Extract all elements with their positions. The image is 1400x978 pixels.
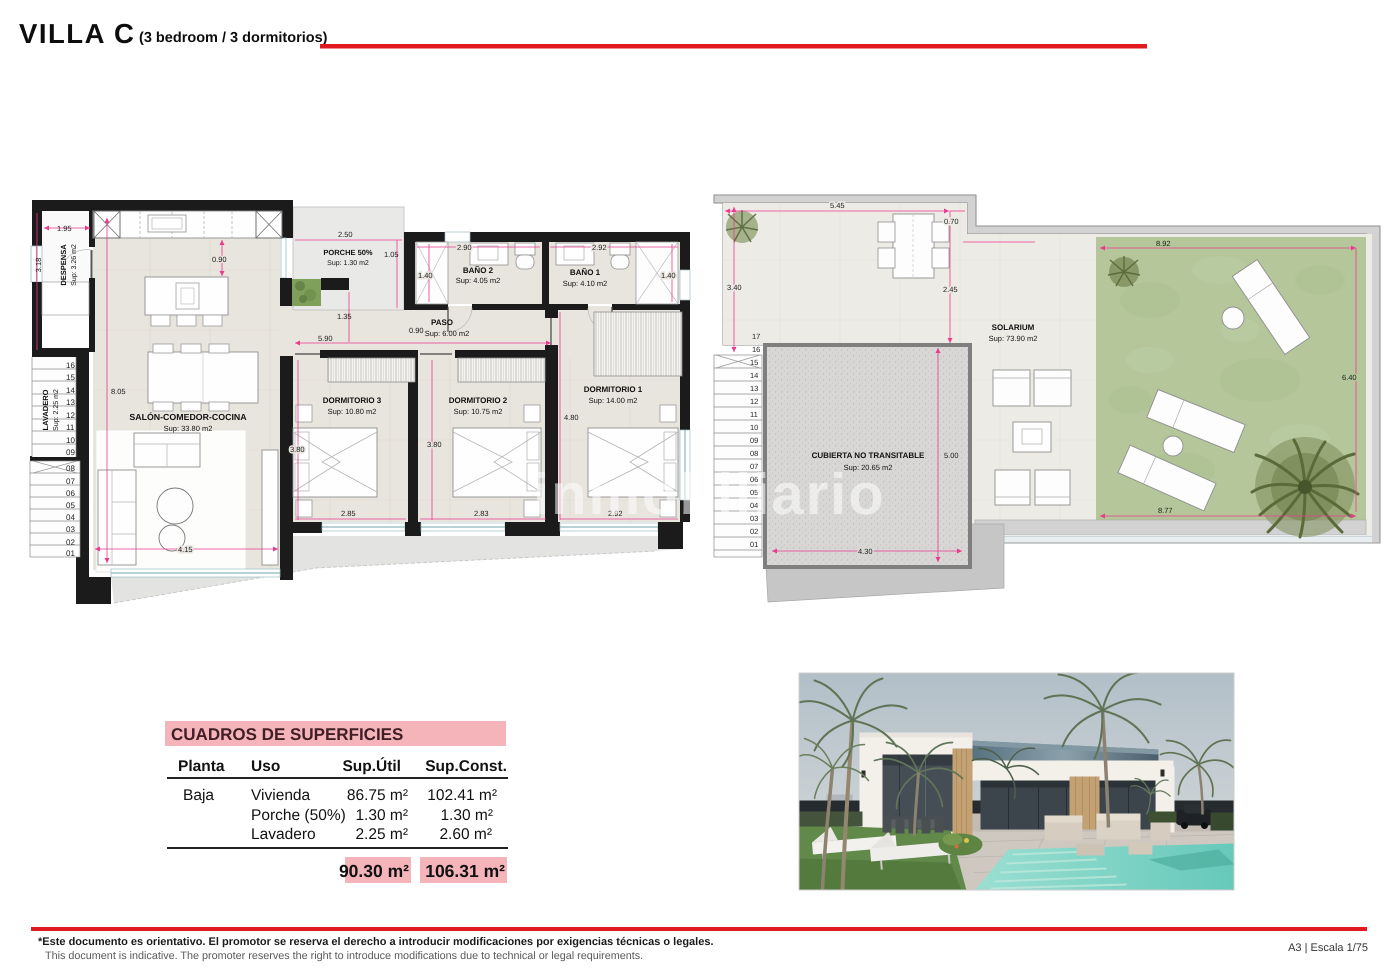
svg-text:PASO: PASO	[431, 318, 453, 327]
svg-text:Vivienda: Vivienda	[251, 787, 311, 804]
svg-text:Sup.Útil: Sup.Útil	[342, 757, 401, 775]
svg-text:12: 12	[66, 411, 75, 420]
svg-text:3.80: 3.80	[290, 445, 305, 454]
svg-text:Sup: 73.90 m2: Sup: 73.90 m2	[989, 334, 1038, 343]
svg-text:1.40: 1.40	[661, 271, 676, 280]
svg-text:2.25 m²: 2.25 m²	[355, 826, 408, 843]
svg-text:02: 02	[66, 538, 75, 547]
svg-text:Lavadero: Lavadero	[251, 826, 316, 843]
svg-text:LAVADERO: LAVADERO	[41, 389, 50, 430]
svg-text:15: 15	[66, 373, 75, 382]
svg-text:2.60 m²: 2.60 m²	[439, 826, 492, 843]
svg-text:Sup: 1.30 m2: Sup: 1.30 m2	[327, 260, 369, 267]
svg-text:SOLARIUM: SOLARIUM	[992, 323, 1035, 332]
svg-text:08: 08	[66, 464, 75, 473]
svg-text:1.30 m²: 1.30 m²	[440, 807, 493, 824]
svg-text:Sup: 2.25 m2: Sup: 2.25 m2	[53, 389, 60, 431]
svg-text:4.80: 4.80	[564, 413, 579, 422]
svg-text:PORCHE 50%: PORCHE 50%	[323, 248, 373, 257]
svg-text:1.40: 1.40	[418, 271, 433, 280]
svg-text:1.30 m²: 1.30 m²	[355, 807, 408, 824]
svg-text:01: 01	[66, 549, 75, 558]
svg-text:2.45: 2.45	[943, 285, 958, 294]
svg-text:1.95: 1.95	[57, 224, 72, 233]
svg-text:inmobiliario: inmobiliario	[533, 462, 886, 527]
svg-text:BAÑO 2: BAÑO 2	[463, 265, 494, 275]
svg-text:5.45: 5.45	[830, 201, 845, 210]
svg-text:06: 06	[66, 489, 75, 498]
svg-text:08: 08	[750, 449, 758, 458]
svg-text:Porche (50%): Porche (50%)	[251, 807, 346, 824]
svg-text:Planta: Planta	[178, 758, 225, 775]
svg-text:Sup: 3.26 m2: Sup: 3.26 m2	[71, 244, 78, 286]
svg-text:VILLA C: VILLA C	[19, 18, 135, 49]
svg-text:13: 13	[750, 384, 758, 393]
svg-text:(3 bedroom / 3 dormitorios): (3 bedroom / 3 dormitorios)	[139, 30, 328, 46]
svg-text:16: 16	[66, 361, 75, 370]
svg-text:90.30 m²: 90.30 m²	[339, 861, 409, 881]
svg-text:3.40: 3.40	[727, 283, 742, 292]
svg-text:Sup: 14.00 m2: Sup: 14.00 m2	[589, 396, 638, 405]
svg-text:3.18: 3.18	[34, 258, 43, 273]
svg-text:Sup.Const.: Sup.Const.	[425, 758, 507, 775]
svg-text:10: 10	[750, 423, 758, 432]
svg-text:04: 04	[66, 513, 75, 522]
svg-text:4.15: 4.15	[178, 545, 193, 554]
svg-text:0.90: 0.90	[409, 326, 424, 335]
svg-text:2.90: 2.90	[457, 243, 472, 252]
svg-text:8.92: 8.92	[1156, 239, 1171, 248]
svg-text:CUBIERTA NO TRANSITABLE: CUBIERTA NO TRANSITABLE	[812, 451, 925, 460]
svg-text:02: 02	[750, 527, 758, 536]
svg-text:Sup: 10.75 m2: Sup: 10.75 m2	[454, 407, 503, 416]
svg-text:2.83: 2.83	[474, 509, 489, 518]
svg-text:Sup: 6.00 m2: Sup: 6.00 m2	[425, 329, 470, 338]
svg-text:86.75 m²: 86.75 m²	[347, 787, 408, 804]
svg-text:17: 17	[752, 332, 760, 341]
svg-text:1.05: 1.05	[384, 250, 399, 259]
svg-text:DORMITORIO 1: DORMITORIO 1	[584, 385, 643, 394]
svg-text:102.41 m²: 102.41 m²	[427, 787, 497, 804]
svg-text:03: 03	[66, 525, 75, 534]
svg-text:*Este documento es orientativo: *Este documento es orientativo. El promo…	[38, 936, 714, 948]
svg-text:05: 05	[66, 501, 75, 510]
svg-text:2.92: 2.92	[592, 243, 607, 252]
svg-text:01: 01	[750, 540, 758, 549]
svg-text:07: 07	[66, 477, 75, 486]
svg-text:12: 12	[750, 397, 758, 406]
svg-text:3.80: 3.80	[427, 440, 442, 449]
svg-text:Baja: Baja	[183, 787, 214, 804]
svg-text:Sup: 33.80 m2: Sup: 33.80 m2	[164, 424, 213, 433]
svg-text:Sup: 4.05 m2: Sup: 4.05 m2	[456, 276, 501, 285]
svg-text:11: 11	[66, 423, 75, 432]
svg-text:16: 16	[752, 345, 760, 354]
svg-text:5.90: 5.90	[318, 334, 333, 343]
svg-text:Sup: 10.80 m2: Sup: 10.80 m2	[328, 407, 377, 416]
svg-text:SALÓN-COMEDOR-COCINA: SALÓN-COMEDOR-COCINA	[129, 412, 247, 422]
svg-text:2.50: 2.50	[338, 230, 353, 239]
svg-text:13: 13	[66, 398, 75, 407]
svg-text:6.40: 6.40	[1342, 373, 1357, 382]
svg-text:15: 15	[750, 358, 758, 367]
svg-text:4.30: 4.30	[858, 547, 873, 556]
svg-text:09: 09	[750, 436, 758, 445]
svg-text:5.00: 5.00	[944, 451, 959, 460]
svg-text:8.77: 8.77	[1158, 506, 1173, 515]
svg-text:2.85: 2.85	[341, 509, 356, 518]
svg-text:BAÑO 1: BAÑO 1	[570, 267, 601, 277]
svg-text:DORMITORIO 2: DORMITORIO 2	[449, 396, 508, 405]
svg-text:Sup: 4.10 m2: Sup: 4.10 m2	[563, 279, 608, 288]
svg-text:14: 14	[66, 386, 75, 395]
svg-text:10: 10	[66, 436, 75, 445]
svg-text:8.05: 8.05	[111, 387, 126, 396]
svg-text:A3 | Escala 1/75: A3 | Escala 1/75	[1288, 942, 1368, 954]
svg-text:0.90: 0.90	[212, 255, 227, 264]
svg-text:This document is indicative. T: This document is indicative. The promote…	[45, 950, 643, 962]
svg-text:106.31 m²: 106.31 m²	[425, 861, 505, 881]
svg-text:11: 11	[750, 410, 758, 419]
svg-text:14: 14	[750, 371, 758, 380]
svg-text:DORMITORIO 3: DORMITORIO 3	[323, 396, 382, 405]
svg-text:Uso: Uso	[251, 758, 280, 775]
svg-text:1.35: 1.35	[337, 312, 352, 321]
svg-text:CUADROS DE SUPERFICIES: CUADROS DE SUPERFICIES	[171, 725, 403, 744]
svg-text:DESPENSA: DESPENSA	[59, 244, 68, 286]
svg-text:09: 09	[66, 448, 75, 457]
svg-text:0.70: 0.70	[944, 217, 959, 226]
